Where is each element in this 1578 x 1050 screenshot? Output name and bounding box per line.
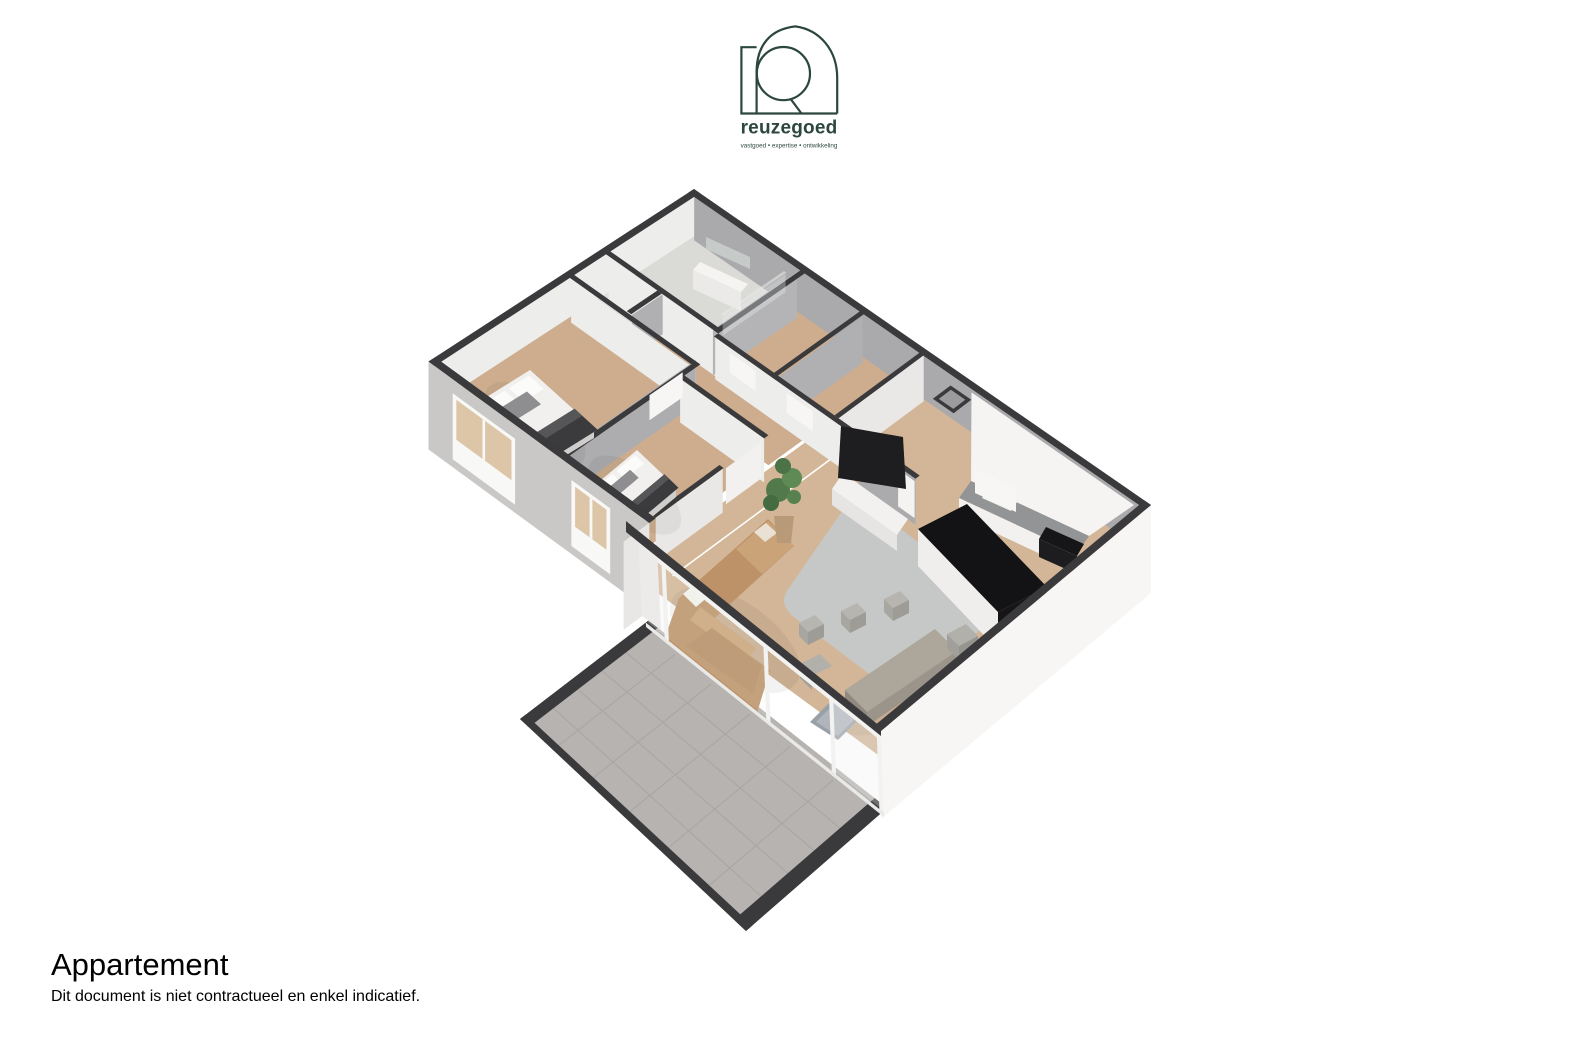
svg-text:vastgoed • expertise • ontwikk: vastgoed • expertise • ontwikkeling xyxy=(741,143,838,150)
svg-text:reuzegoed: reuzegoed xyxy=(741,118,838,139)
